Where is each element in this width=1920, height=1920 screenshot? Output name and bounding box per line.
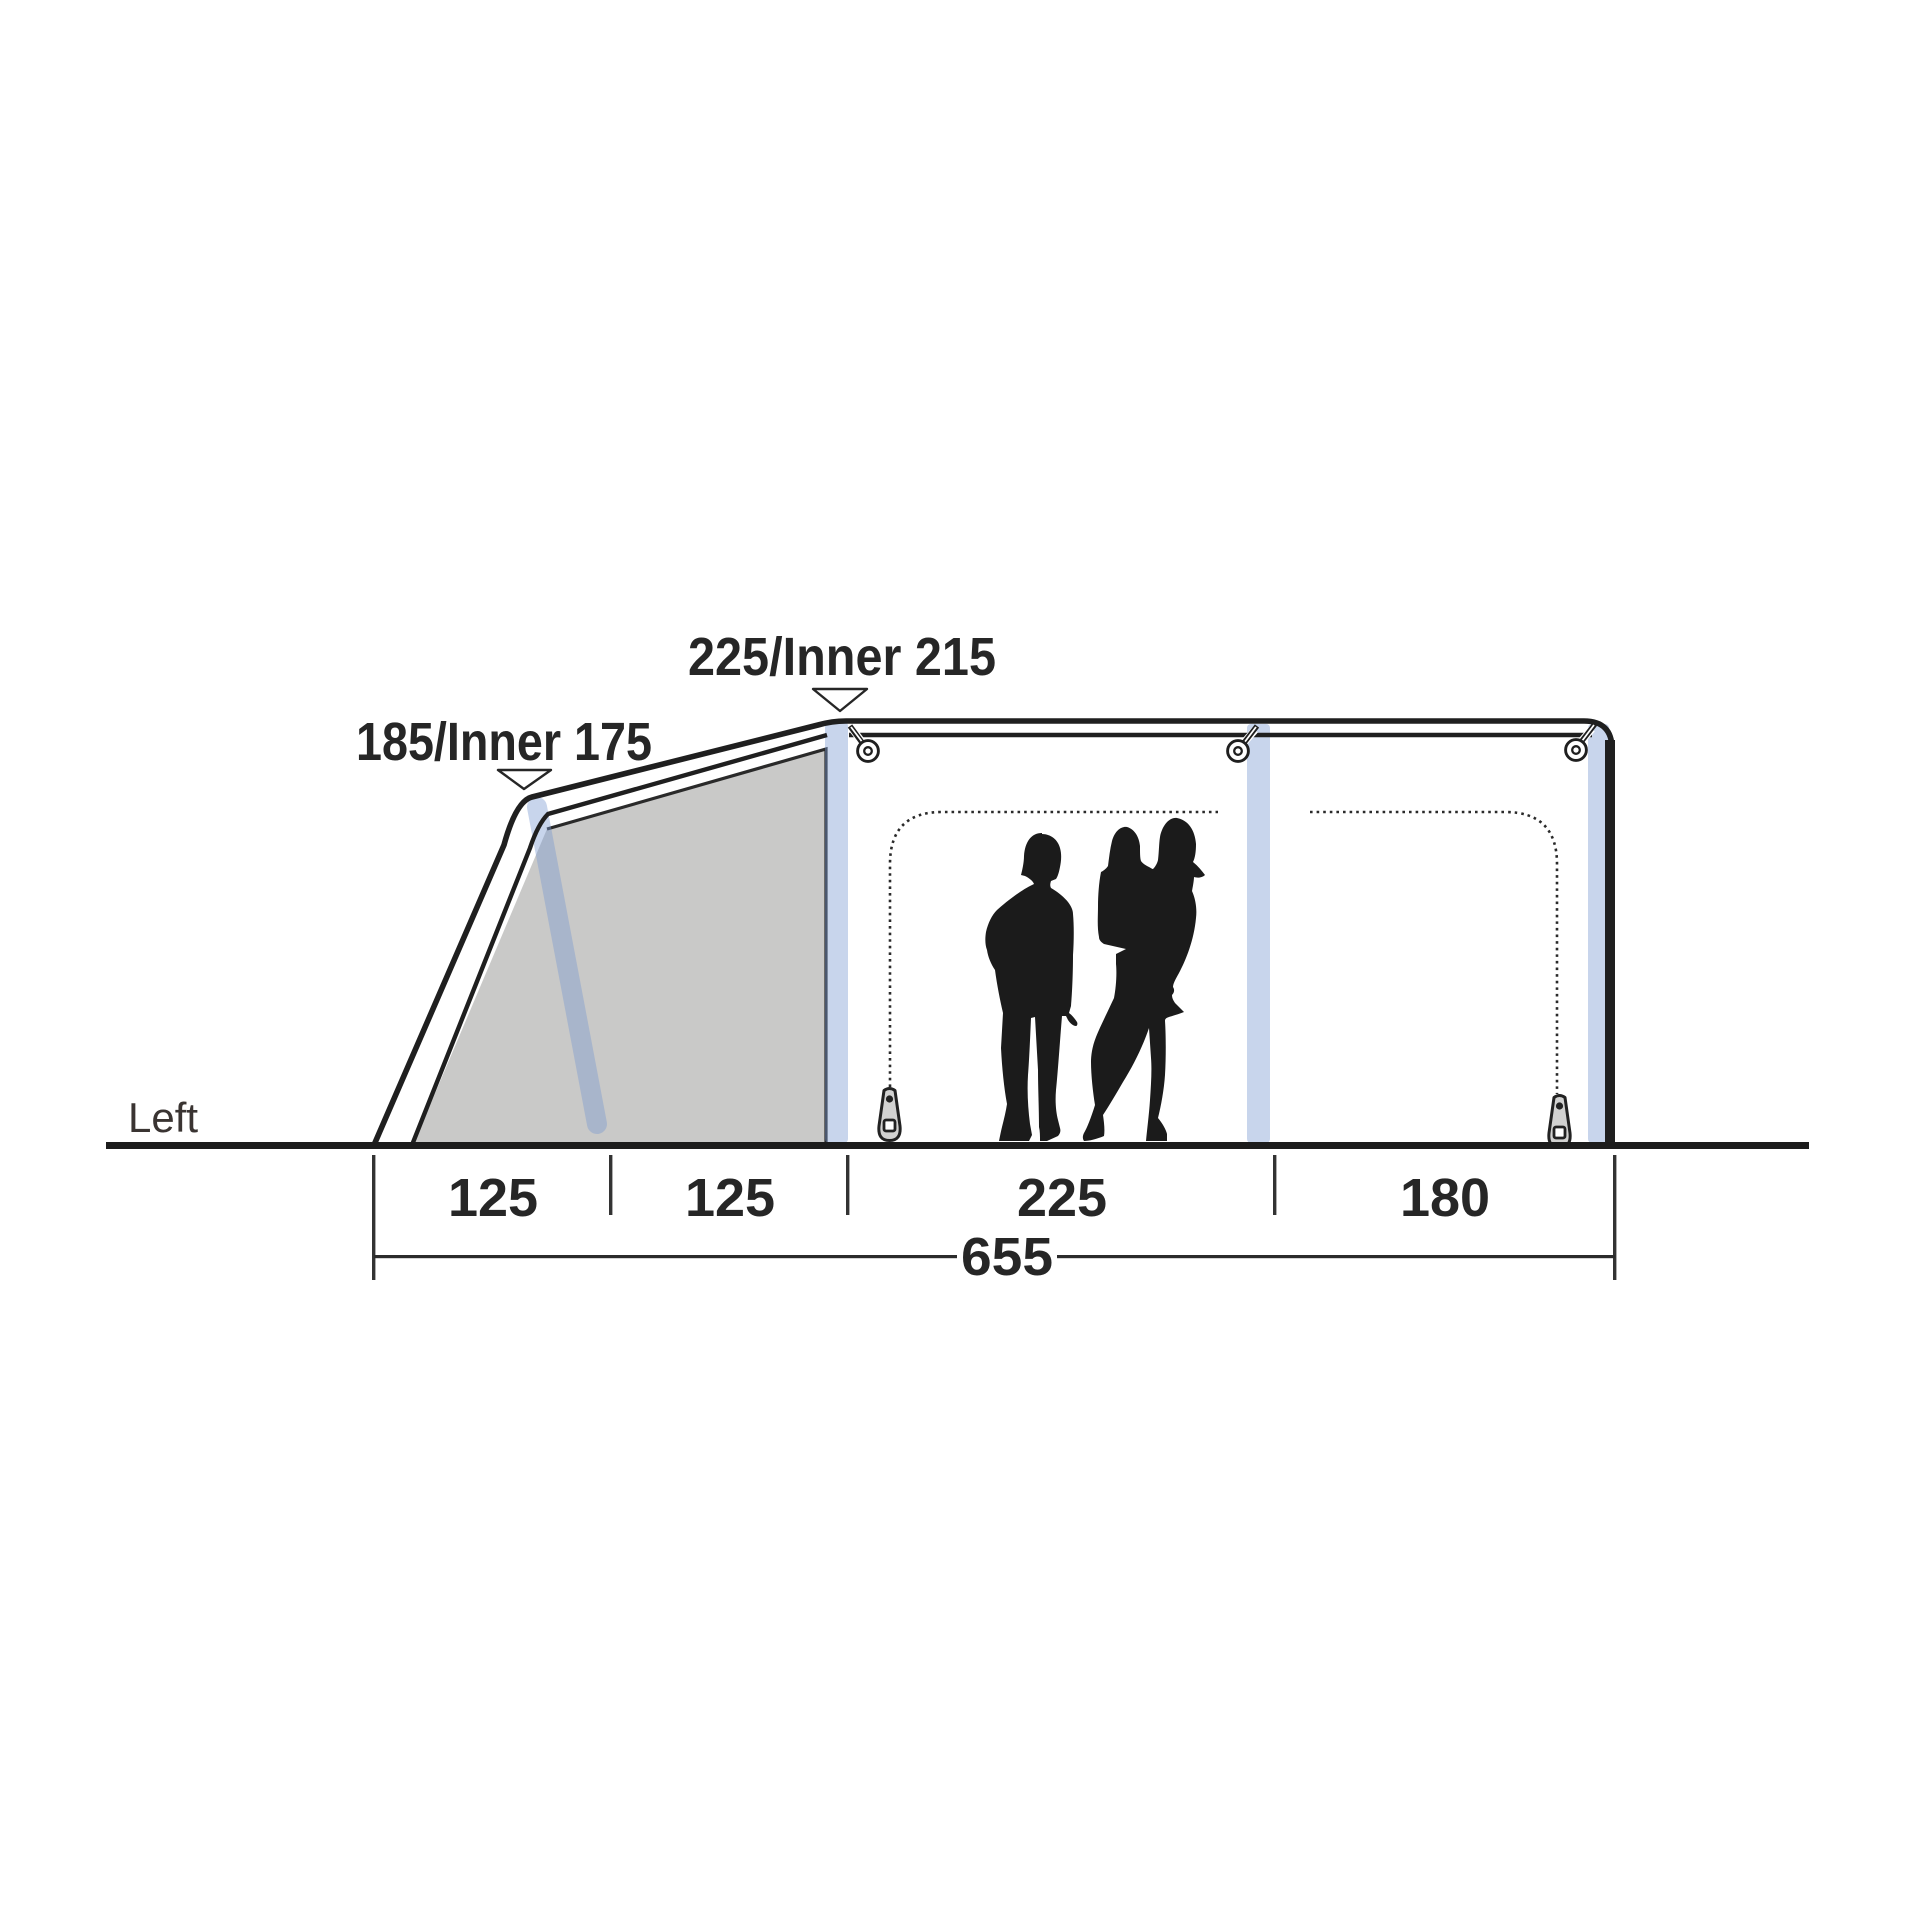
svg-text:225: 225 xyxy=(1017,1168,1107,1228)
svg-text:125: 125 xyxy=(448,1168,538,1228)
svg-text:655: 655 xyxy=(961,1227,1053,1287)
svg-text:185/Inner 175: 185/Inner 175 xyxy=(356,712,652,772)
svg-text:Left: Left xyxy=(128,1094,198,1141)
svg-text:225/Inner 215: 225/Inner 215 xyxy=(688,627,996,687)
svg-text:180: 180 xyxy=(1400,1168,1490,1228)
svg-text:125: 125 xyxy=(685,1168,775,1228)
